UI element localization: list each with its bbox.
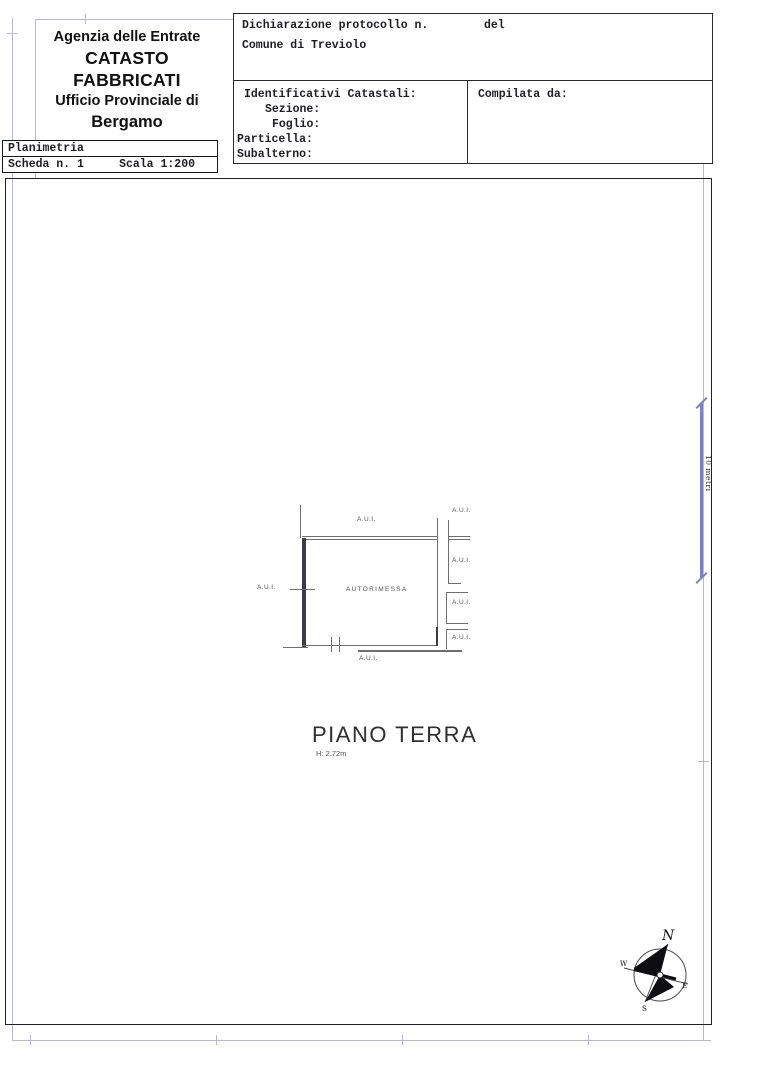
- plan-bottom-wall: [302, 645, 438, 646]
- sheet-number: Scheda n. 1: [8, 157, 84, 172]
- scale-bar: [700, 403, 703, 578]
- plot-frame-bottom: [12, 1040, 711, 1041]
- plan-door-tick: [339, 637, 340, 652]
- compass-north-label: N: [661, 928, 675, 944]
- plan-top-wall: [302, 536, 437, 537]
- aui-label: A.U.I.: [452, 634, 471, 641]
- floor-title: PIANO TERRA: [312, 722, 477, 748]
- subalterno-label: Subalterno:: [237, 147, 313, 162]
- plan-wall-corner: [436, 627, 438, 646]
- sezione-label: Sezione:: [265, 102, 320, 117]
- plan-top-wall: [304, 539, 437, 540]
- province-name: Bergamo: [35, 111, 219, 133]
- identifiers-box-divider: [467, 81, 468, 163]
- plan-unit-wall: [446, 629, 468, 630]
- identifiers-title: Identificativi Catastali:: [244, 87, 417, 102]
- office-line: Ufficio Provinciale di: [35, 91, 219, 111]
- particella-label: Particella:: [237, 132, 313, 147]
- compass-east-label: E: [682, 982, 687, 990]
- floor-height: H: 2.72m: [316, 749, 346, 758]
- plan-unit-wall: [446, 629, 447, 649]
- plan-left-tick: [290, 589, 315, 590]
- drawing-frame: [5, 178, 712, 1025]
- plan-wall-stub: [283, 647, 308, 648]
- agency-name: Agenzia delle Entrate: [35, 27, 219, 47]
- compass-south-label: S: [642, 1005, 647, 1013]
- plan-door-tick: [331, 637, 332, 652]
- planimetria-box: Planimetria Scheda n. 1 Scala 1:200: [2, 140, 218, 173]
- comune-label: Comune di Treviolo: [242, 39, 366, 52]
- scale-bar-label: 10 metri: [704, 455, 713, 491]
- doc-type-label: Planimetria: [3, 141, 217, 157]
- frame-tick: [85, 14, 86, 24]
- declaration-box: Dichiarazione protocollo n. del Comune d…: [233, 13, 713, 81]
- cadastre-title: CATASTO FABBRICATI: [35, 47, 219, 91]
- compass-west-label: W: [620, 960, 628, 968]
- frame-tick: [588, 1035, 589, 1045]
- aui-label: A.U.I.: [257, 584, 276, 591]
- plan-unit-wall: [448, 520, 449, 583]
- plan-unit-wall: [446, 623, 468, 624]
- plan-unit-wall: [448, 536, 470, 537]
- compiled-by-label: Compilata da:: [478, 87, 568, 102]
- planimetria-page: Agenzia delle Entrate CATASTO FABBRICATI…: [0, 0, 763, 1080]
- compass-rose: N W E S: [620, 924, 696, 1016]
- aui-label: A.U.I.: [452, 507, 471, 514]
- declaration-label: Dichiarazione protocollo n.: [242, 19, 428, 32]
- plan-unit-wall: [448, 583, 461, 584]
- frame-tick: [402, 1035, 403, 1045]
- frame-tick: [7, 33, 18, 34]
- plan-wall-stub: [300, 505, 301, 538]
- identifiers-box: Identificativi Catastali: Sezione: Fogli…: [233, 80, 713, 164]
- frame-tick: [216, 1035, 217, 1045]
- aui-label: A.U.I.: [357, 516, 376, 523]
- aui-label: A.U.I.: [359, 655, 378, 662]
- agency-header: Agenzia delle Entrate CATASTO FABBRICATI…: [35, 27, 219, 133]
- aui-label: A.U.I.: [452, 557, 471, 564]
- plan-unit-wall: [446, 592, 468, 593]
- plan-boundary-line: [358, 650, 462, 652]
- frame-tick: [30, 1035, 31, 1045]
- plan-left-wall: [302, 538, 306, 648]
- scale-value: Scala 1:200: [119, 157, 195, 172]
- plan-unit-wall: [448, 539, 470, 540]
- room-label: AUTORIMESSA: [346, 586, 408, 593]
- declaration-del-label: del: [484, 19, 505, 32]
- foglio-label: Foglio:: [272, 117, 320, 132]
- plan-unit-wall: [446, 592, 447, 624]
- aui-label: A.U.I.: [452, 599, 471, 606]
